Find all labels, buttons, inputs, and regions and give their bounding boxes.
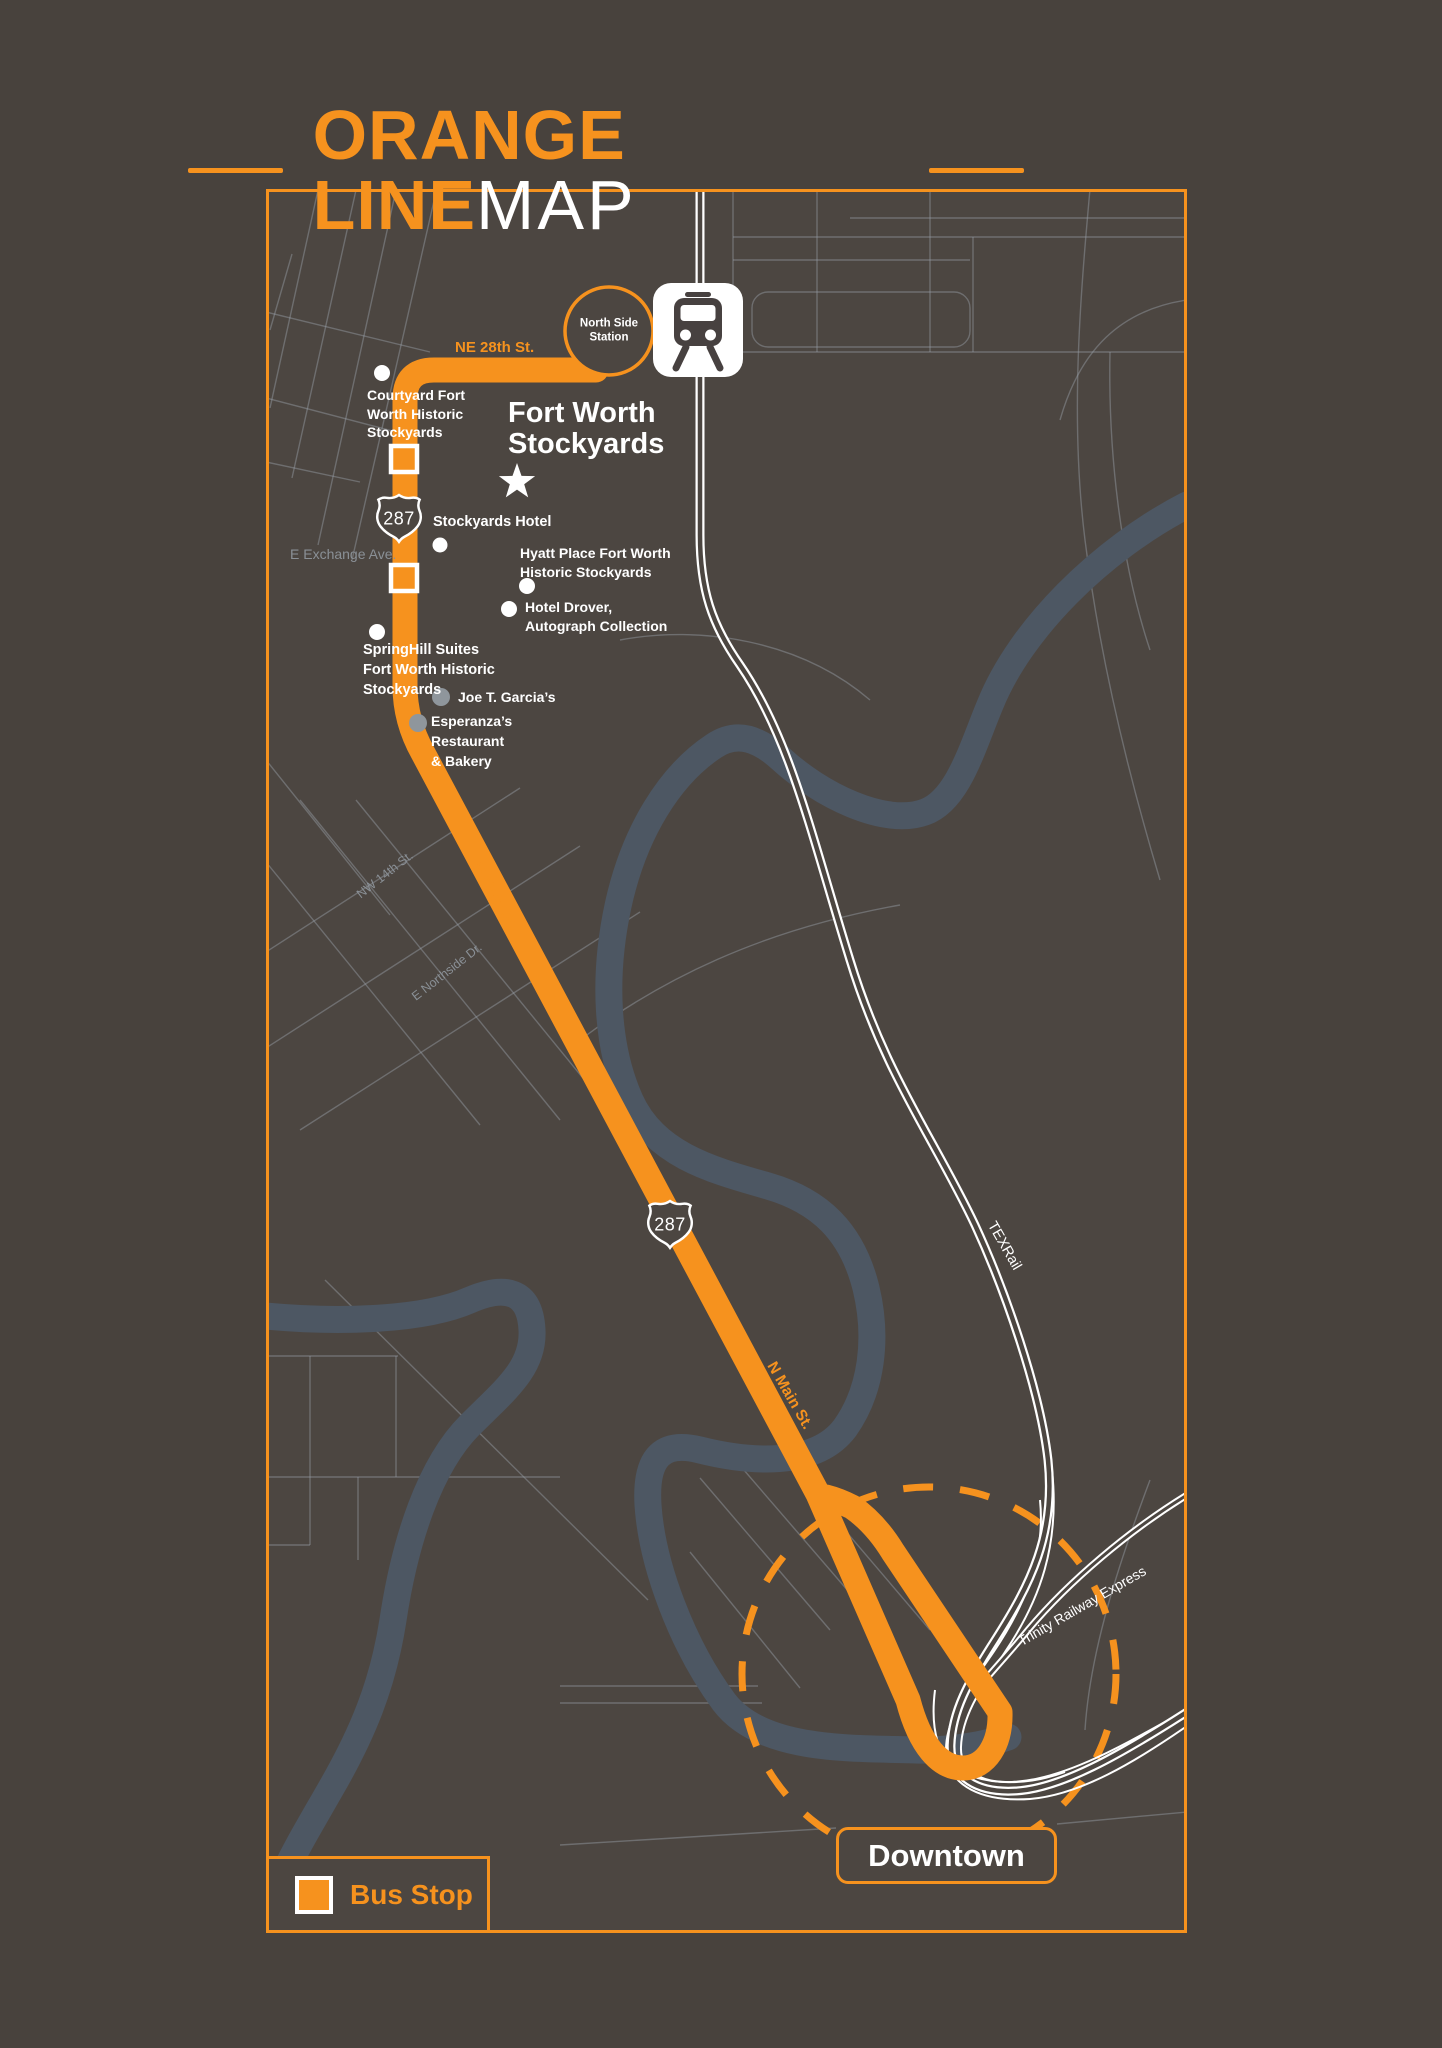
poi-label-hyatt: Hyatt Place Fort Worth Historic Stockyar… xyxy=(520,544,671,581)
star-icon xyxy=(499,463,535,497)
downtown-dashed-circle xyxy=(742,1487,1116,1861)
route-label-ne-28th: NE 28th St. xyxy=(455,339,534,358)
bus-stop-square-2 xyxy=(391,565,417,591)
bus-stop-square-icon xyxy=(295,1876,333,1914)
street-label-e-exchange: E Exchange Ave. xyxy=(290,545,396,564)
orange-line-map-poster: ORANGE LINEMAP NE 28th St. Courtyard For… xyxy=(0,0,1442,2048)
legend-bus-stop-label: Bus Stop xyxy=(350,1879,473,1911)
poi-label-courtyard: Courtyard Fort Worth Historic Stockyards xyxy=(367,386,465,442)
downtown-label: Downtown xyxy=(868,1838,1025,1874)
title-rule-left xyxy=(188,168,283,173)
hotel-dot-springhill xyxy=(369,624,385,640)
map-canvas xyxy=(0,0,1442,2048)
hotel-dot-drover xyxy=(501,601,517,617)
bus-stop-legend: Bus Stop xyxy=(266,1856,490,1933)
train-station-icon xyxy=(653,283,743,377)
poi-label-esperanzas: Esperanza’s Restaurant & Bakery xyxy=(431,711,512,771)
restaurant-dot-esperanza xyxy=(409,714,427,732)
area-heading-fort-worth-stockyards: Fort Worth Stockyards xyxy=(508,398,664,460)
hotel-dot-courtyard xyxy=(374,365,390,381)
poi-label-stockyards-hotel: Stockyards Hotel xyxy=(433,513,551,532)
poi-label-joe-t-garcias: Joe T. Garcia’s xyxy=(458,688,556,707)
hotel-dot-stockyards-hotel xyxy=(433,538,448,553)
river-meander xyxy=(266,1292,532,1872)
bus-stop-square-1 xyxy=(391,446,417,472)
title-rule-right xyxy=(929,168,1024,173)
poster-title: ORANGE LINEMAP xyxy=(188,100,1024,240)
station-label-north-side: North Side Station xyxy=(580,318,638,345)
poi-label-hotel-drover: Hotel Drover, Autograph Collection xyxy=(525,598,667,635)
trinity-railway-express-line xyxy=(985,1495,1187,1680)
title-map: MAP xyxy=(476,166,637,244)
shield-number-287-2: 287 xyxy=(654,1215,686,1236)
shield-number-287-1: 287 xyxy=(383,509,415,530)
downtown-label-box: Downtown xyxy=(836,1827,1057,1884)
